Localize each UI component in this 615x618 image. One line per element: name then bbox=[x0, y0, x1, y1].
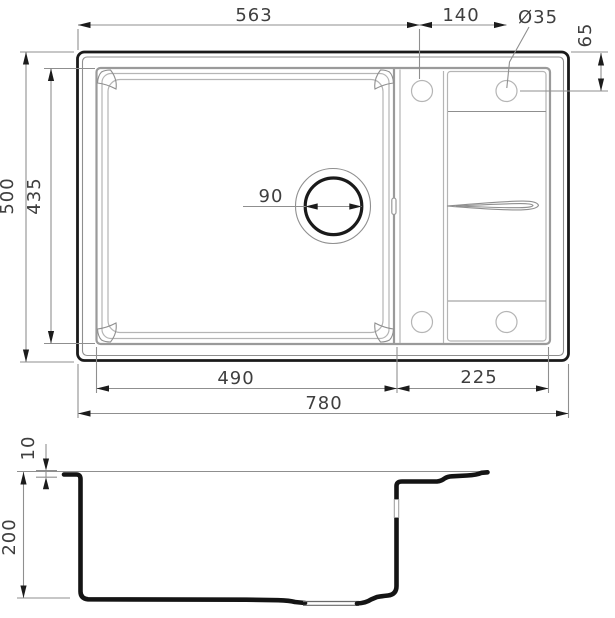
dim-label-200: 200 bbox=[0, 518, 20, 555]
arrowhead bbox=[97, 385, 110, 391]
arrowhead bbox=[23, 52, 29, 65]
arrowhead bbox=[78, 22, 91, 28]
dim-label-490: 490 bbox=[217, 368, 254, 389]
faucet-hole-bottom-left bbox=[412, 312, 433, 333]
dim-225: 225 bbox=[397, 347, 549, 393]
arrowhead bbox=[494, 22, 507, 28]
dim-label-hole-diameter: Ø35 bbox=[518, 7, 558, 28]
arrowhead bbox=[556, 410, 569, 416]
dim-label-10: 10 bbox=[18, 436, 39, 461]
arrowhead bbox=[536, 385, 549, 391]
dim-label-563: 563 bbox=[235, 5, 272, 26]
arrowhead bbox=[48, 69, 54, 82]
faucet-hole-top-left bbox=[412, 81, 433, 102]
arrowhead bbox=[43, 459, 49, 471]
dim-label-90: 90 bbox=[259, 186, 284, 207]
dim-140: 140 bbox=[420, 5, 507, 28]
section-view: 10 200 bbox=[0, 436, 488, 606]
dim-label-780: 780 bbox=[305, 393, 342, 414]
bowl-corner-flap-br bbox=[375, 323, 394, 342]
arrowhead bbox=[78, 410, 91, 416]
arrowhead bbox=[397, 385, 410, 391]
dim-200: 200 bbox=[0, 472, 70, 598]
arrowhead bbox=[305, 203, 318, 209]
dim-label-140: 140 bbox=[442, 5, 479, 26]
dim-90: 90 bbox=[243, 186, 362, 210]
faucet-hole-top-right bbox=[496, 81, 517, 102]
overflow-slot bbox=[392, 198, 396, 215]
dim-435: 435 bbox=[24, 69, 95, 344]
dim-label-225: 225 bbox=[460, 367, 497, 388]
profile-bowl-right-lower bbox=[357, 518, 397, 604]
arrowhead bbox=[43, 477, 49, 489]
drainboard bbox=[444, 71, 547, 343]
dim-label-435: 435 bbox=[24, 177, 45, 214]
arrowhead bbox=[407, 22, 420, 28]
arrowhead bbox=[23, 350, 29, 363]
section-profile bbox=[64, 472, 488, 605]
bowl-corner-flap-tr bbox=[375, 70, 394, 89]
bowl-corner-flap-tl bbox=[98, 70, 117, 89]
arrowhead bbox=[20, 472, 26, 485]
arrowhead bbox=[48, 331, 54, 344]
profile-bowl-left bbox=[64, 475, 305, 604]
arrowhead bbox=[20, 586, 26, 599]
faucet-hole-bottom-right bbox=[496, 312, 517, 333]
arrowhead bbox=[349, 203, 362, 209]
bowl-corner-flap-bl bbox=[98, 323, 117, 342]
dim-490: 490 bbox=[97, 347, 398, 393]
dim-label-500: 500 bbox=[0, 177, 18, 214]
overflow-hole-section bbox=[394, 500, 398, 518]
dim-label-65: 65 bbox=[575, 23, 596, 48]
arrowhead bbox=[420, 22, 433, 28]
arrowhead bbox=[385, 385, 398, 391]
profile-bowl-right-upper bbox=[397, 472, 488, 499]
arrowhead bbox=[598, 53, 604, 66]
top-view: 563 140 Ø35 65 bbox=[0, 5, 608, 418]
sink-technical-drawing: 563 140 Ø35 65 bbox=[0, 0, 615, 618]
arrowhead bbox=[598, 79, 604, 92]
